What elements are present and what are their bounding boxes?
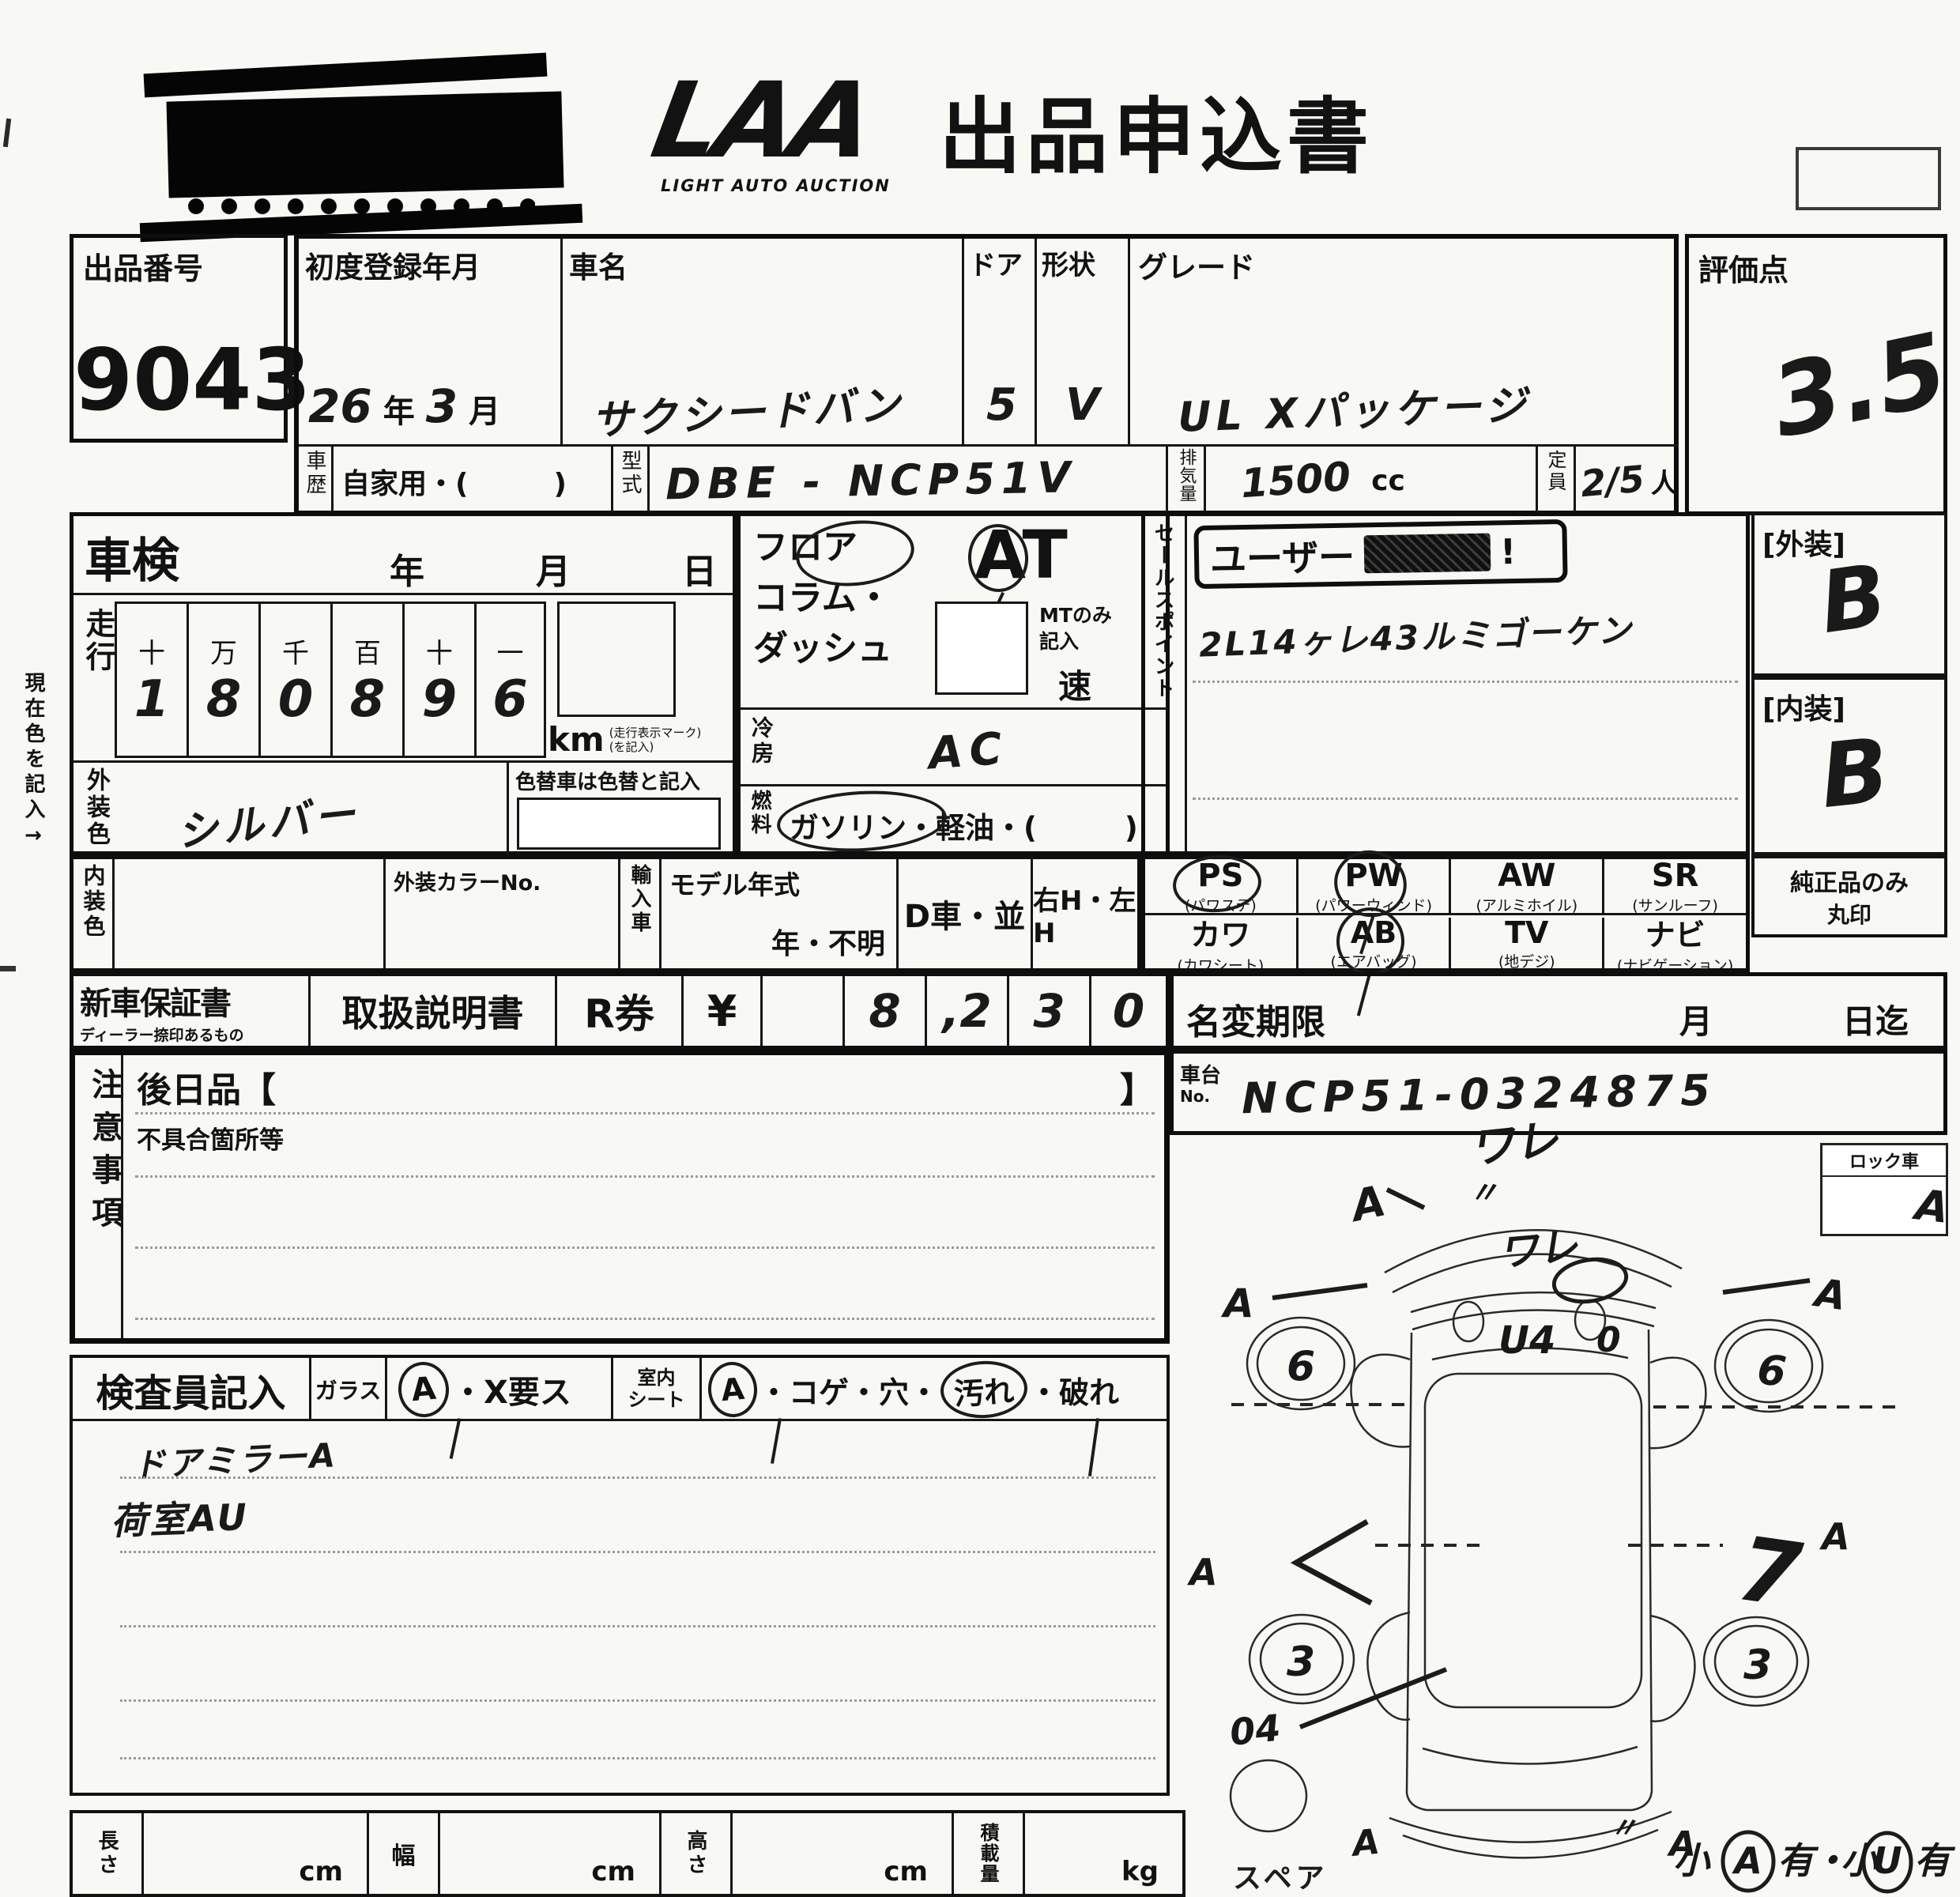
mileage-digit: 9 — [422, 670, 458, 729]
rear-wheel-mark-left: 3 — [1287, 1639, 1315, 1686]
height-unit: cm — [884, 1856, 928, 1888]
dealer-option: D車・並 — [904, 891, 1025, 937]
ditto-mark: 〃 — [1468, 1175, 1498, 1210]
model-code-value: DBE - NCP51V — [649, 452, 1076, 509]
color-no-label: 外装カラーNo. — [386, 859, 618, 896]
ruled-line — [135, 1112, 1155, 1114]
ruled-line — [120, 1699, 1155, 1702]
laa-logo-text: LAA — [645, 66, 948, 176]
documents-row: 新車保証書 ディーラー捺印あるもの 取扱説明書 R券 ¥ 8 ,2 3 0 — [70, 972, 1170, 1050]
fuel-label: 燃料 — [745, 790, 775, 837]
genuine-parts-note2: 丸印 — [1827, 898, 1871, 930]
user-stamp: ユーザー ! — [1193, 519, 1567, 589]
equip-sr: SR — [1652, 858, 1699, 894]
capacity-value: 2/5 — [1574, 457, 1646, 505]
recolor-note: 色替車は色替と記入 — [509, 763, 733, 795]
ruled-line — [120, 1625, 1155, 1627]
model-year-label: モデル年式 — [661, 859, 896, 902]
warranty-sublabel: ディーラー捺印あるもの — [73, 1024, 308, 1045]
transfer-day-unit: 日迄 — [1842, 995, 1909, 1043]
length-value-cell: cm — [144, 1813, 369, 1894]
equip-aw: AW — [1498, 858, 1555, 894]
ruled-line — [120, 1476, 1155, 1479]
amount-cell: 3 — [1009, 976, 1091, 1046]
a-mark: A — [1220, 1280, 1254, 1326]
equip-leather: カワ — [1190, 911, 1250, 954]
legend-a: A — [1732, 1839, 1762, 1882]
seat-options: ・コゲ・穴・ — [759, 1368, 939, 1412]
stamp-bar-top — [144, 53, 548, 98]
displacement-cell: 1500 cc — [1206, 447, 1538, 515]
first-reg-year-value: 26 — [308, 379, 372, 433]
arrow-left-mark — [1296, 1522, 1371, 1603]
glass-label-cell: ガラス — [311, 1358, 387, 1421]
model-code-label-cell: 型式 — [613, 447, 650, 515]
rticket-label: R券 — [584, 982, 654, 1039]
handle-option: 右H・左H — [1033, 879, 1137, 949]
length-label: 長さ — [92, 1830, 122, 1877]
a-mark: A — [1344, 1175, 1390, 1231]
width-value-cell: cm — [440, 1813, 661, 1894]
height-label: 高さ — [681, 1830, 710, 1877]
roof-dent-mark: U4 — [1498, 1318, 1555, 1363]
stain-option: 汚れ — [953, 1367, 1016, 1413]
shaken-label: 車検 — [85, 522, 179, 591]
yen-cell: ¥ — [684, 976, 763, 1046]
load-unit: kg — [1121, 1856, 1159, 1888]
amount-digit: 8 — [869, 984, 900, 1038]
score-box: 評価点 3.5 — [1685, 234, 1947, 515]
chassis-label: 車台 — [1180, 1065, 1221, 1088]
capacity-label-cell: 定員 — [1538, 447, 1576, 515]
door-label: ドア — [969, 243, 1023, 282]
fuel-row: 燃料 ガソリン・軽油・( ) — [741, 784, 1166, 855]
amount-digit: 3 — [1033, 984, 1065, 1038]
seat-label-line1: 室内 — [638, 1367, 676, 1390]
first-reg-month-value: 3 — [426, 379, 458, 433]
warranty-label: 新車保証書 — [73, 976, 308, 1024]
car-name-cell: 車名 サクシードバン — [563, 239, 964, 444]
height-label-cell: 高さ — [661, 1813, 733, 1894]
top-right-box — [1796, 147, 1941, 210]
mt-speed-box — [935, 602, 1028, 695]
model-year-note: 年・不明 — [771, 921, 885, 962]
mileage-digit-header: 一 — [496, 632, 523, 670]
a-mark: A — [1348, 1822, 1381, 1865]
ruled-line — [120, 1551, 1155, 1553]
model-code-cell: DBE - NCP51V — [650, 447, 1168, 515]
mileage-digit: 8 — [206, 670, 242, 729]
yen-symbol: ¥ — [707, 986, 737, 1036]
int-condition-box: [内装] B — [1751, 677, 1947, 855]
lot-number-box: 出品番号 9043 — [70, 234, 288, 443]
equip-tv-note: (地デジ) — [1498, 950, 1555, 971]
shaken-row: 車検 年 月 日 — [73, 516, 733, 595]
cooling-value: AC — [927, 722, 1012, 779]
ditto-mark: 〃 — [1609, 1812, 1638, 1845]
ruled-line — [135, 1246, 1155, 1249]
crack-note-top: ワレ — [1468, 1122, 1562, 1175]
int-color-label-cell: 内装色 — [73, 859, 115, 968]
dimensions-row: 長さ cm 幅 cm 高さ cm 積載量 kg — [70, 1810, 1185, 1897]
mileage-label: 走行 — [77, 608, 120, 674]
transfer-month-unit: 月 — [1679, 995, 1713, 1043]
defect-label: 不具合箇所等 — [137, 1120, 284, 1156]
inspector-note2: 荷室AU — [110, 1488, 250, 1545]
lower-left-mark: 04 — [1228, 1707, 1283, 1754]
manual-label: 取扱説明書 — [342, 985, 524, 1037]
history-label: 車歴 — [300, 450, 330, 497]
lot-number-label: 出品番号 — [83, 244, 203, 288]
rear-wheel-mark-right: 3 — [1743, 1642, 1772, 1689]
user-stamp-smudge — [1364, 534, 1491, 574]
cooling-label: 冷房 — [745, 716, 777, 767]
glass-value-cell: A ・X要ス — [387, 1358, 613, 1421]
rticket-cell: R券 — [557, 976, 684, 1046]
ruled-line — [135, 1175, 1155, 1178]
notes-block: 注意事項 後日品【 】 不具合箇所等 — [70, 1050, 1170, 1344]
model-code-label: 型式 — [616, 450, 645, 497]
laa-logo: LAA LIGHT AUTO AUCTION — [654, 66, 939, 224]
transfer-deadline-row: 名変期限 月 日迄 — [1170, 972, 1947, 1050]
mt-note2: 記入 — [1039, 629, 1112, 655]
amount-cell: 8 — [845, 976, 927, 1046]
redacted-stamp — [136, 55, 602, 237]
amount-digit: 0 — [1113, 984, 1144, 1038]
cooling-row: 冷房 AC — [741, 707, 1166, 784]
later-items-close-bracket: 】 — [1120, 1062, 1155, 1112]
user-stamp-mark: ! — [1500, 532, 1517, 572]
ruled-line — [135, 1318, 1155, 1320]
mileage-digit: 6 — [492, 670, 528, 729]
glass-label: ガラス — [315, 1374, 381, 1405]
width-label-cell: 幅 — [369, 1813, 440, 1894]
grade-cell: グレード UL Xパッケージ — [1130, 239, 1679, 444]
genuine-parts-box: 純正品のみ 丸印 — [1751, 855, 1947, 937]
stamp-block — [166, 91, 563, 198]
int-color-value-cell — [115, 859, 383, 968]
chassis-label-no: No. — [1180, 1088, 1221, 1105]
ext-color-value: シルバー — [174, 780, 363, 858]
spare-label: スペア — [1233, 1862, 1328, 1895]
shaken-year-unit: 年 — [390, 543, 424, 594]
seat-label-line2: シート — [628, 1390, 685, 1412]
equip-navi: ナビ — [1645, 911, 1706, 954]
amount-cell — [763, 976, 845, 1046]
mileage-row: 走行 十1 万8 千0 百8 十9 一6 km (走行表示マーク) (を記入) — [73, 595, 733, 763]
door-cell: ドア 5 — [964, 239, 1037, 444]
seat-grade-circle: A — [706, 1360, 759, 1419]
inspector-label: 検査員記入 — [96, 1362, 285, 1417]
inspector-label-cell: 検査員記入 — [73, 1358, 311, 1421]
warranty-cell: 新車保証書 ディーラー捺印あるもの — [73, 976, 311, 1046]
ext-color-row: 外装色 シルバー 色替車は色替と記入 — [73, 763, 733, 859]
handwritten-marks: ワレ 〃 A A ワレ A A U4 0 6 6 A 7 A 3 3 04 A … — [1187, 1122, 1956, 1882]
amount-cell: ,2 — [927, 976, 1009, 1046]
sales-point-label: セールスポイント — [1148, 522, 1178, 700]
mileage-sticker-box — [557, 602, 676, 717]
score-value: 3.5 — [1762, 312, 1957, 461]
handle-cell: 右H・左H — [1033, 859, 1137, 968]
int-condition-label: [内装] — [1755, 680, 1944, 727]
ruled-line — [1193, 798, 1738, 800]
color-no-cell: 外装カラーNo. — [383, 859, 620, 968]
stain-circle: 汚れ — [939, 1359, 1029, 1420]
dealer-cell: D車・並 — [899, 859, 1033, 968]
door-value: 5 — [986, 379, 1017, 431]
recolor-box — [517, 798, 721, 850]
amount-digit: ,2 — [942, 984, 991, 1038]
front-wheel-mark-left: 6 — [1287, 1343, 1315, 1390]
load-label-cell: 積載量 — [954, 1813, 1025, 1894]
import-cell: 輸入車 — [620, 859, 661, 968]
a-mark: A — [1819, 1515, 1850, 1558]
manual-cell: 取扱説明書 — [311, 976, 557, 1046]
seat-label-cell: 室内 シート — [613, 1358, 702, 1421]
equip-tv: TV — [1505, 915, 1548, 950]
int-color-label: 内装色 — [77, 864, 109, 940]
transfer-deadline-label: 名変期限 — [1186, 994, 1325, 1044]
user-stamp-text: ユーザー — [1209, 529, 1355, 583]
crack-note-glass: ワレ — [1497, 1223, 1581, 1276]
grade-value: UL Xパッケージ — [1177, 371, 1532, 443]
displacement-unit: cc — [1371, 465, 1405, 497]
ext-color-label: 外装色 — [78, 767, 113, 848]
scan-artifact — [0, 966, 16, 971]
equip-aw-note: (アルミホイル) — [1476, 894, 1577, 915]
first-reg-label: 初度登録年月 — [305, 243, 481, 286]
a-mark: A — [1909, 1179, 1951, 1233]
seat-circle-tail — [771, 1418, 782, 1464]
length-unit: cm — [299, 1856, 343, 1888]
damage-diagram: ワレ 〃 A A ワレ A A U4 0 6 6 A 7 A 3 3 04 A … — [1185, 1122, 1960, 1897]
glass-circle-tail — [450, 1418, 462, 1459]
legend-small1: 小 — [1673, 1839, 1711, 1882]
history-value: 自家用・( ) — [334, 461, 567, 502]
int-condition-value: B — [1815, 719, 1893, 828]
model-year-cell: モデル年式 年・不明 — [661, 859, 899, 968]
import-label: 輸入車 — [625, 864, 654, 935]
displacement-label: 排気量 — [1174, 448, 1199, 503]
shaken-month-unit: 月 — [536, 543, 571, 594]
a-mark: A — [1187, 1551, 1218, 1593]
front-wheel-mark-right: 6 — [1755, 1346, 1788, 1396]
month-unit: 月 — [469, 386, 500, 432]
mileage-note2: (を記入) — [609, 740, 702, 754]
ext-condition-value: B — [1815, 546, 1893, 653]
seat-value-cell: A ・コゲ・穴・ 汚れ ・破れ — [702, 1358, 1167, 1421]
color-modelyear-band: 内装色 外装カラーNo. 輸入車 モデル年式 年・不明 D車・並 右H・左H — [70, 855, 1141, 972]
score-label: 評価点 — [1698, 246, 1788, 289]
capacity-cell: 2/5 人 — [1576, 447, 1679, 515]
history-value-cell: 自家用・( ) — [334, 447, 613, 515]
mileage-digit-header: 十 — [426, 632, 453, 670]
mileage-digit-header: 千 — [282, 632, 309, 670]
mileage-digit: 8 — [350, 670, 386, 729]
legend-u: U — [1872, 1839, 1902, 1882]
stain-circle-tail — [1088, 1418, 1099, 1476]
shape-label: 形状 — [1042, 243, 1095, 282]
shaken-day-unit: 日 — [682, 543, 717, 594]
recolor-cell: 色替車は色替と記入 — [507, 763, 733, 859]
arrow-right-mark: 7 — [1732, 1518, 1807, 1628]
left-block: 車検 年 月 日 走行 十1 万8 千0 百8 十9 一6 km (走行表示マー… — [70, 512, 737, 855]
a-mark: A — [1809, 1269, 1849, 1319]
mileage-unit: km — [548, 720, 605, 759]
load-label: 積載量 — [974, 1823, 1002, 1884]
vehicle-table: 初度登録年月 26 年 3 月 車名 サクシードバン ドア 5 形状 V グレー… — [294, 234, 1679, 515]
width-unit: cm — [591, 1856, 635, 1888]
seat-grade: A — [719, 1371, 745, 1408]
capacity-unit: 人 — [1651, 462, 1678, 500]
auction-sheet: LAA LIGHT AUTO AUCTION 出品申込書 出品番号 9043 初… — [0, 0, 1960, 1897]
chassis-value: NCP51-0324875 — [1241, 1065, 1717, 1123]
car-name-label: 車名 — [569, 243, 628, 286]
mileage-digit-header: 万 — [210, 632, 237, 670]
ext-condition-box: [外装] B — [1751, 512, 1947, 677]
mileage-digit-header: 百 — [354, 632, 381, 670]
mid-block: フロア コラム・ ダッシュ AT MTのみ 記入 速 冷房 AC 燃料 ガソリン… — [737, 512, 1170, 855]
width-label: 幅 — [392, 1836, 416, 1871]
seat-options-rest: ・破れ — [1029, 1368, 1119, 1412]
mileage-digit: 0 — [278, 670, 314, 729]
roof-zero-mark: 0 — [1596, 1320, 1621, 1360]
load-value-cell: kg — [1025, 1813, 1182, 1894]
mileage-note1: (走行表示マーク) — [609, 726, 702, 740]
inspector-block: 検査員記入 ガラス A ・X要ス 室内 シート A ・コゲ・穴・ 汚れ ・破れ … — [70, 1355, 1170, 1796]
margin-note: 現在色を記入→ — [19, 672, 48, 852]
length-label-cell: 長さ — [73, 1813, 144, 1894]
ruled-line — [1193, 681, 1738, 683]
sales-point-note: 2L14ヶレ43ルミゴーケン — [1198, 603, 1634, 666]
glass-grade-circle: A — [396, 1360, 451, 1419]
glass-options: ・X要ス — [452, 1367, 571, 1412]
mileage-grid: 十1 万8 千0 百8 十9 一6 — [115, 602, 546, 758]
lot-number-value: 9043 — [73, 331, 284, 430]
mileage-digit: 1 — [134, 670, 170, 729]
mt-note1: MTのみ — [1039, 603, 1112, 629]
genuine-parts-note1: 純正品のみ — [1790, 863, 1909, 898]
speed-label: 速 — [1058, 660, 1091, 708]
first-reg-cell: 初度登録年月 26 年 3 月 — [299, 239, 563, 444]
glass-grade: A — [410, 1371, 438, 1409]
mileage-unit-note: km (走行表示マーク) (を記入) — [548, 720, 701, 759]
car-name-value: サクシードバン — [590, 371, 904, 447]
amount-cell: 0 — [1091, 976, 1166, 1046]
mileage-digit-header: 十 — [138, 632, 165, 670]
height-value-cell: cm — [733, 1813, 954, 1894]
center-dashes — [1231, 1405, 1901, 1545]
shape-value: V — [1065, 379, 1099, 431]
page-title: 出品申込書 — [939, 70, 1374, 189]
history-label-cell: 車歴 — [299, 447, 334, 515]
displacement-value: 1500 — [1204, 453, 1352, 509]
grade-label: グレード — [1138, 243, 1255, 286]
year-unit: 年 — [383, 386, 415, 432]
transmission-cell: フロア コラム・ ダッシュ AT MTのみ 記入 速 — [741, 516, 1166, 707]
ruled-line — [120, 1757, 1155, 1759]
sales-point-block: セールスポイント ユーザー ! 2L14ヶレ43ルミゴーケン — [1141, 512, 1750, 855]
scan-artifact — [3, 119, 11, 147]
legend-yuu2: 有 — [1914, 1839, 1956, 1882]
displacement-label-cell: 排気量 — [1168, 447, 1206, 515]
capacity-label: 定員 — [1542, 450, 1570, 494]
later-items-label: 後日品【 — [137, 1062, 276, 1112]
shape-cell: 形状 V — [1037, 239, 1130, 444]
